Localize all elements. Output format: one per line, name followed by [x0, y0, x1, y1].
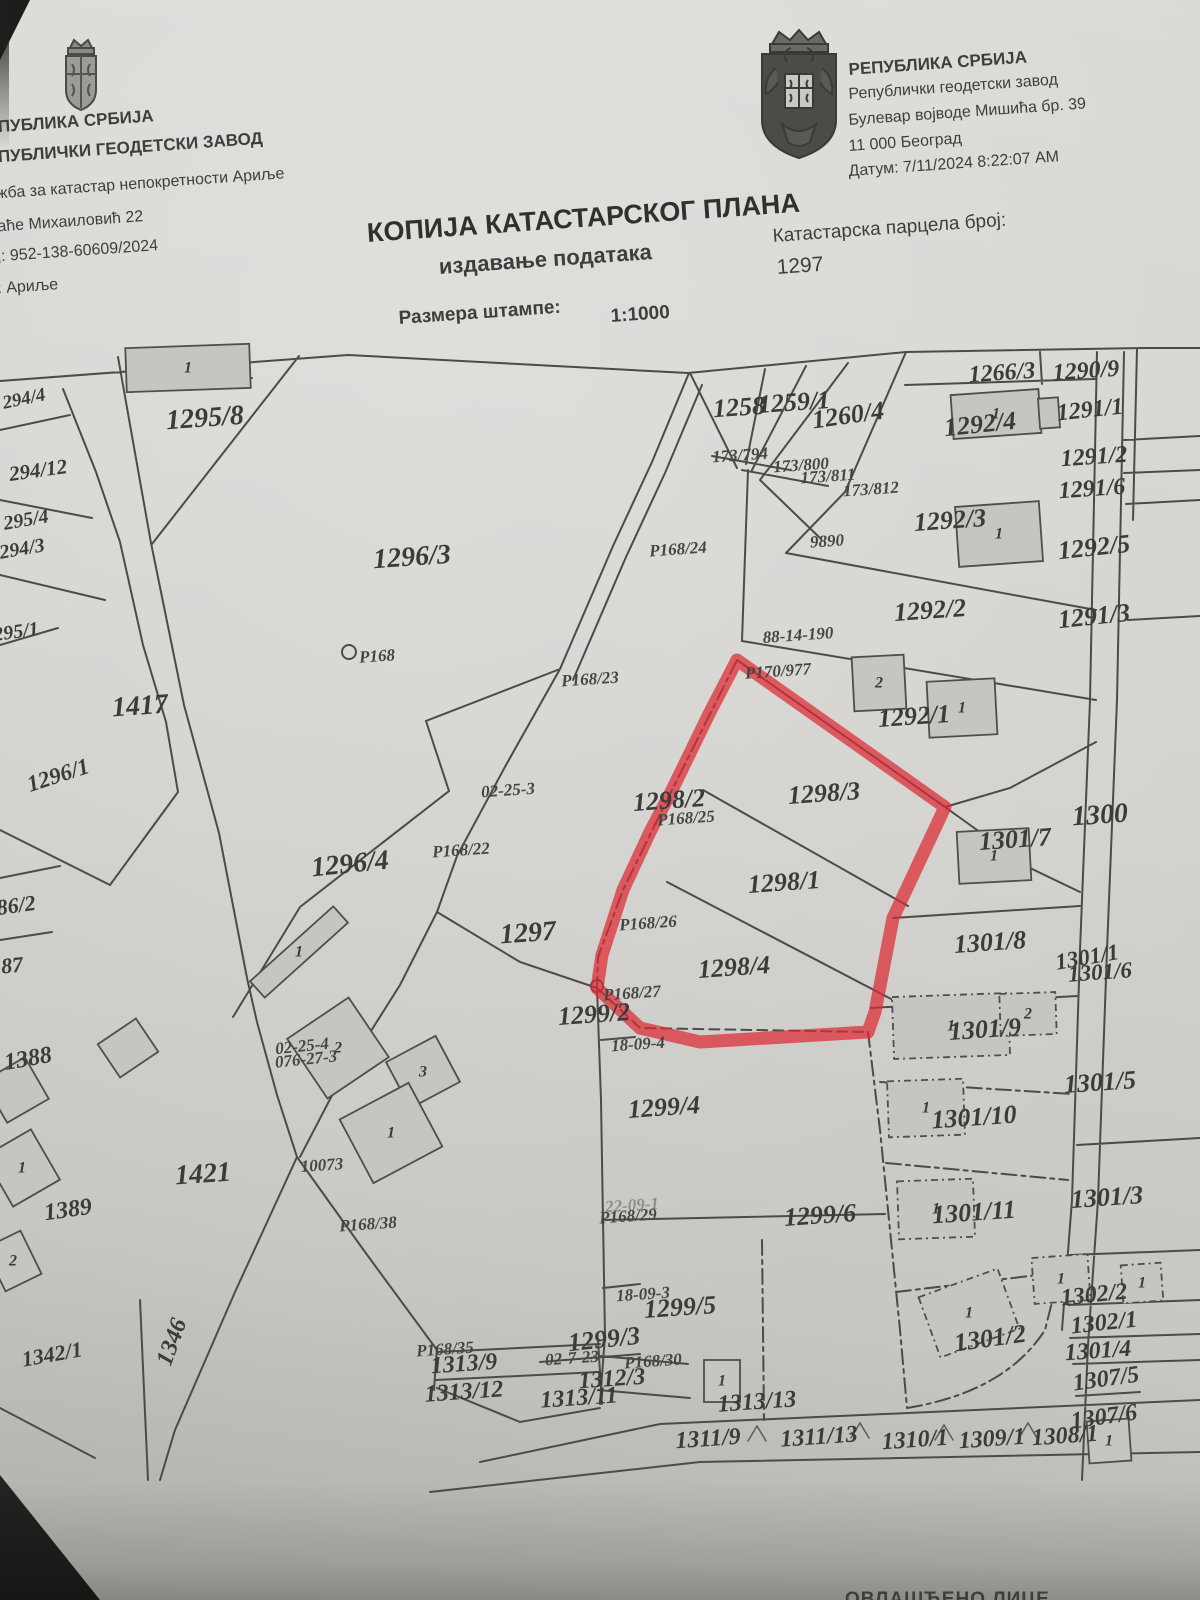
parcel-label: 295/4 — [1, 505, 51, 535]
survey-label: 02-25-3 — [480, 779, 536, 802]
parcel-label: 1301/6 — [1067, 957, 1133, 986]
parcel-label: 1421 — [174, 1157, 232, 1192]
building-number: 3 — [418, 1064, 427, 1081]
scale-value: 1:1000 — [610, 302, 671, 328]
survey-label: 173/794 — [712, 444, 769, 467]
survey-label: 18-09-3 — [615, 1283, 671, 1306]
parcel-label: 1300 — [1071, 798, 1129, 833]
parcel-label: 1291/6 — [1058, 474, 1126, 505]
building-number: 2 — [8, 1253, 17, 1270]
document-subtitle: издавање података — [438, 239, 653, 280]
parcel-label: 1310/1 — [881, 1425, 949, 1456]
survey-label: P168/23 — [560, 667, 620, 690]
building: 1 — [0, 1129, 60, 1206]
survey-label: P168/27 — [602, 981, 663, 1004]
survey-label: P168/26 — [618, 911, 678, 934]
building-number: 2 — [874, 675, 883, 692]
building: 2 — [0, 1231, 41, 1292]
parcel-label: 1296/3 — [372, 539, 452, 575]
survey-label: 173/812 — [843, 478, 900, 501]
parcel-label: 1307/5 — [1071, 1361, 1141, 1396]
cut-off-footer-text: ОВЛАШЋЕНО ЛИЦЕ — [845, 1589, 1050, 1600]
parcel-label: 1292/1 — [877, 699, 951, 733]
issuer-country: ЕПУБЛИКА СРБИЈА — [0, 106, 154, 138]
parcel-label: 1302/2 — [1059, 1279, 1128, 1312]
parcel-label: 1292/2 — [893, 593, 967, 627]
survey-label: P168/30 — [623, 1349, 683, 1372]
building: 1 — [125, 344, 250, 392]
survey-label: P170/977 — [743, 659, 813, 683]
parcel-label: 1311/13 — [780, 1421, 859, 1452]
building-number: 1 — [965, 1305, 973, 1322]
parcel-label: 1290/9 — [1052, 356, 1120, 387]
scanned-cadastral-document: ЕПУБЛИКА СРБИЈА ЕПУБЛИЧКИ ГЕОДЕТСКИ ЗАВО… — [0, 0, 1200, 1600]
building: 1 — [250, 906, 348, 997]
parcel-label: 1302/1 — [1069, 1307, 1138, 1340]
parcel-label: 87 — [0, 951, 25, 978]
parcel-label: 1291/1 — [1055, 394, 1124, 427]
parcel-label: 1301/5 — [1063, 1065, 1137, 1099]
issuer-address: раће Михаиловић 22 — [0, 208, 144, 237]
survey-label: P168/22 — [431, 838, 491, 861]
building-number: 1 — [387, 1125, 395, 1142]
survey-label: 18-09-4 — [610, 1033, 665, 1056]
survey-label: P168/29 — [598, 1204, 658, 1227]
parcel-label: 1346 — [152, 1315, 193, 1369]
parcel-label: 1301/3 — [1070, 1180, 1144, 1214]
building-number: 1 — [958, 700, 966, 717]
parcel-label: 1301/8 — [953, 925, 1027, 959]
parcel-label: 1342/1 — [20, 1336, 85, 1371]
building-number: 1 — [718, 1373, 726, 1390]
case-number: ој: 952-138-60609/2024 — [0, 237, 159, 267]
parcel-number: 1297 — [776, 253, 824, 280]
building-number: 1 — [295, 944, 303, 961]
parcel-label: 1301/11 — [931, 1195, 1017, 1230]
building-number: 1 — [1105, 1433, 1113, 1450]
building — [98, 1019, 159, 1078]
survey-label: P168/24 — [648, 538, 708, 561]
parcel-label: 1313/13 — [717, 1386, 797, 1417]
parcel-label: 1417 — [111, 689, 170, 724]
parcel-label: 1313/11 — [540, 1382, 619, 1413]
issuer-office: ужба за катастар непокретности Ариље — [0, 165, 285, 204]
parcel-label: 1313/12 — [424, 1376, 504, 1407]
parcel-label: 1388 — [2, 1042, 54, 1076]
survey-label: 9890 — [809, 530, 845, 551]
municipality: р: Ариље — [0, 276, 59, 299]
document-title: КОПИЈА КАТАСТАРСКОГ ПЛАНА — [366, 188, 801, 249]
parcel-label: 1298/4 — [697, 950, 771, 984]
institute-city: 11 000 Београд — [848, 130, 962, 156]
parcel-label: 1292/4 — [943, 406, 1018, 442]
parcel-label: 1299/6 — [783, 1198, 857, 1232]
parcel-label: 1299/4 — [627, 1090, 701, 1124]
building-number: 1 — [184, 360, 192, 377]
cadastral-map: 111211121111111231112 1295/8294/4294/122… — [0, 340, 1200, 1500]
parcel-label: 1301/9 — [948, 1012, 1022, 1046]
parcel-label: 1301/7 — [978, 822, 1053, 856]
survey-point-icon — [342, 645, 356, 659]
parcel-label: 1309/1 — [958, 1424, 1026, 1455]
parcel-label: 1297 — [499, 916, 558, 951]
survey-label: 88-14-190 — [762, 623, 834, 647]
serbia-coat-of-arms-icon — [752, 28, 846, 180]
parcel-label: 1266/3 — [968, 358, 1036, 389]
building-number: 2 — [1023, 1006, 1032, 1023]
parcel-label: 294/12 — [6, 454, 69, 486]
buildings-layer: 111211121111111231112 — [0, 344, 1163, 1464]
parcel-label: 1301/10 — [930, 1100, 1017, 1135]
building-number: 1 — [18, 1160, 26, 1177]
parcel-caption: Катастарска парцела број: — [772, 210, 1007, 248]
survey-label: 02-7-23 — [544, 1347, 600, 1370]
parcel-label: 1301/4 — [1064, 1336, 1132, 1367]
parcel-label: 1291/3 — [1057, 598, 1132, 634]
parcel-label: 294/4 — [0, 384, 47, 414]
parcel-label: 86/2 — [0, 890, 37, 920]
parcel-label: 294/3 — [0, 534, 46, 564]
building-number: 1 — [995, 526, 1003, 543]
parcel-label: 1389 — [42, 1194, 93, 1226]
scale-caption: Размера штампе: — [398, 297, 562, 330]
parcel-label: 1311/9 — [675, 1424, 742, 1454]
parcel-label: 295/1 — [0, 618, 40, 646]
parcel-label: 1298/3 — [787, 776, 861, 810]
survey-label: 10073 — [300, 1154, 344, 1176]
building-number: 1 — [1138, 1275, 1146, 1292]
parcel-label: 1298/1 — [747, 865, 821, 899]
issuer-institute: ЕПУБЛИЧКИ ГЕОДЕТСКИ ЗАВОД — [0, 129, 263, 168]
serbia-coat-of-arms-small-icon — [52, 36, 110, 116]
parcel-label: 1292/3 — [913, 503, 987, 537]
parcel-label: 1291/2 — [1060, 442, 1128, 473]
building-number: 1 — [922, 1100, 930, 1117]
survey-label: P168/25 — [656, 806, 716, 829]
parcel-label: 1296/4 — [310, 845, 391, 884]
parcel-label: 1295/8 — [165, 400, 245, 436]
parcel-label: 1296/1 — [24, 753, 92, 797]
survey-label: P168/38 — [338, 1212, 398, 1235]
survey-label: P168 — [357, 645, 396, 667]
